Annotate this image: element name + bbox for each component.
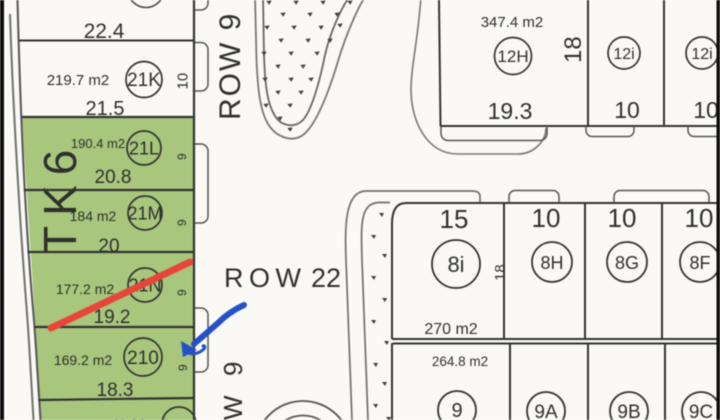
svg-text:12i: 12i [691, 46, 712, 63]
svg-text:9: 9 [218, 362, 248, 376]
svg-text:22: 22 [311, 263, 341, 293]
svg-text:21L: 21L [129, 139, 159, 159]
svg-text:270 m2: 270 m2 [424, 321, 477, 338]
svg-text:21K: 21K [127, 70, 161, 91]
svg-text:20.8: 20.8 [95, 167, 132, 188]
svg-text:8F: 8F [689, 253, 710, 273]
svg-text:TK6: TK6 [34, 140, 86, 254]
svg-text:10: 10 [693, 97, 719, 123]
svg-text:21M: 21M [127, 204, 162, 224]
svg-text:190.4 m2: 190.4 m2 [71, 136, 125, 151]
svg-text:9A: 9A [534, 402, 558, 420]
svg-text:9C: 9C [689, 402, 713, 420]
svg-text:20: 20 [98, 236, 119, 257]
svg-text:9: 9 [451, 400, 462, 420]
svg-text:169.2 m2: 169.2 m2 [54, 352, 113, 368]
svg-text:18: 18 [560, 36, 587, 63]
svg-text:9: 9 [175, 289, 189, 296]
svg-text:210: 210 [127, 348, 159, 369]
svg-text:12i: 12i [613, 46, 634, 63]
svg-text:18: 18 [492, 264, 509, 281]
svg-text:12H: 12H [497, 47, 528, 66]
svg-text:ROW: ROW [224, 263, 306, 293]
svg-text:10: 10 [175, 73, 192, 90]
svg-text:10: 10 [608, 203, 637, 233]
svg-text:9: 9 [175, 153, 189, 160]
svg-text:10: 10 [614, 97, 640, 123]
svg-text:15: 15 [440, 204, 469, 234]
svg-text:184 m2: 184 m2 [70, 208, 117, 224]
svg-text:347.4 m2: 347.4 m2 [481, 14, 544, 31]
svg-text:ROW: ROW [218, 394, 248, 420]
svg-text:ROW 9: ROW 9 [214, 12, 247, 120]
svg-text:8H: 8H [540, 253, 563, 273]
svg-text:264.8 m2: 264.8 m2 [432, 354, 488, 369]
svg-text:9: 9 [175, 219, 189, 226]
svg-text:9: 9 [176, 364, 190, 371]
svg-text:19.2: 19.2 [94, 307, 131, 328]
svg-text:219.7 m2: 219.7 m2 [47, 72, 110, 89]
svg-text:41.36 m2: 41.36 m2 [111, 416, 170, 420]
svg-text:8G: 8G [615, 253, 639, 273]
svg-text:8i: 8i [447, 252, 464, 277]
svg-text:19.3: 19.3 [488, 98, 533, 124]
svg-text:177.2 m2: 177.2 m2 [56, 281, 115, 297]
svg-text:10: 10 [532, 203, 561, 233]
svg-text:10: 10 [685, 203, 714, 233]
svg-text:9B: 9B [617, 402, 640, 420]
